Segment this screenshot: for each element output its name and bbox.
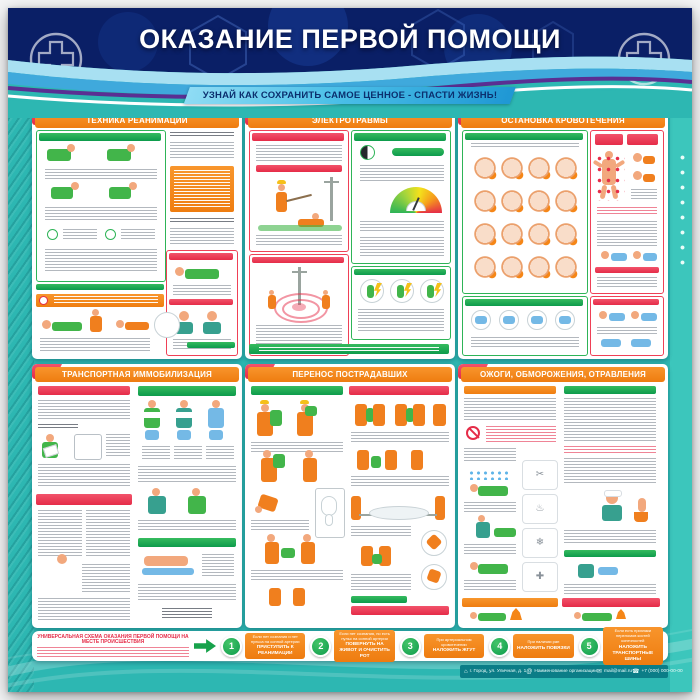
footer-organization-text: Наименование организации — [534, 669, 597, 674]
rope-coil — [321, 496, 337, 516]
figure — [268, 295, 276, 309]
check-icon — [47, 229, 58, 240]
sub-header-bar — [36, 284, 164, 290]
step-3-number: 3 — [400, 636, 421, 657]
bandaging-box — [590, 296, 664, 356]
text-lines — [86, 510, 130, 556]
frost-icon: ❄ — [522, 528, 558, 558]
rope-coil — [325, 514, 333, 526]
scheme-step-1: 1 Если нет сознания и нет пульса на сонн… — [221, 633, 305, 660]
head-bandage — [604, 490, 622, 497]
figure-head — [71, 182, 79, 190]
rescuer-figure — [293, 588, 305, 606]
text-lines — [40, 338, 150, 352]
panel-bleeding-control: ОСТАНОВКА КРОВОТЕЧЕНИЯ 3 — [458, 110, 668, 359]
red-text-lines — [486, 426, 556, 442]
bandage — [641, 313, 657, 321]
victim-head — [470, 484, 478, 492]
text-lines — [206, 446, 234, 460]
step-3-action: НАЛОЖИТЬ ЖГУТ — [427, 648, 481, 654]
bleeding-points — [595, 153, 625, 201]
sub-header-bar — [251, 386, 343, 395]
victim-figure — [273, 454, 285, 468]
text-lines — [162, 608, 212, 618]
text-lines — [45, 169, 157, 181]
text-lines — [256, 145, 342, 161]
bandage — [643, 253, 657, 261]
text-lines — [170, 142, 234, 160]
scheme-description-lines — [37, 647, 189, 658]
footer-address: ⌂ г. Город, ул. Уличная, д. 1 — [464, 669, 526, 675]
figure-head — [180, 400, 188, 408]
arm-sling — [176, 412, 192, 418]
ground — [258, 225, 342, 231]
panel-4-title: ТРАНСПОРТНАЯ ИММОБИЛИЗАЦИЯ — [35, 367, 239, 382]
figure-head — [129, 182, 137, 190]
voltage-center — [292, 303, 306, 311]
pressure-points-box — [462, 130, 588, 294]
safe-voltage-box — [351, 130, 451, 264]
pressure-hand — [643, 156, 655, 164]
figure-head — [212, 400, 220, 408]
step-5-action: НАЛОЖИТЬ ТРАНСПОРТНЫЕ ШИНЫ — [606, 645, 660, 663]
figure-head — [207, 311, 217, 321]
text-lines — [464, 448, 516, 462]
victim-body — [185, 269, 219, 279]
rescuer-arm — [125, 322, 149, 330]
text-lines — [597, 327, 657, 335]
sub-header-bar — [627, 134, 658, 145]
text-lines — [631, 189, 657, 201]
text-lines — [351, 432, 449, 442]
sub-header-bar — [595, 267, 659, 273]
text-lines — [471, 337, 579, 349]
bandage — [631, 339, 651, 347]
step-4-number: 4 — [489, 636, 510, 657]
bandage — [611, 253, 627, 261]
footer-email-text: mail@mail.ru — [604, 669, 632, 674]
figure — [367, 285, 374, 298]
step-2-box: Если нет сознания, но есть пульс на сонн… — [334, 630, 394, 663]
alert-bar — [36, 294, 164, 307]
step-5-box: Если есть признаки переломов костей коне… — [603, 627, 663, 664]
rescuer-figure — [413, 404, 425, 426]
panel-grid: ТЕХНИКА РЕАНИМАЦИИ 1 — [32, 110, 668, 628]
sub-header-bar — [465, 133, 583, 140]
panel-5-title: ПЕРЕНОС ПОСТРАДАВШИХ — [248, 367, 452, 382]
text-lines — [259, 347, 439, 352]
sub-header-bar — [465, 299, 583, 306]
footer-email: ✉ mail@mail.ru — [597, 669, 632, 675]
step-5-number: 5 — [579, 636, 600, 657]
step-4-box: При наличии ран НАЛОЖИТЬ ПОВЯЗКИ — [513, 634, 573, 658]
water-glass-icon: ✚ — [522, 562, 558, 592]
figure-body — [602, 505, 622, 521]
thermometer-icon: ♨ — [522, 494, 558, 524]
green-pill-label — [392, 148, 444, 156]
victim-head — [42, 320, 51, 329]
step-4-condition: При наличии ран — [516, 640, 570, 645]
red-text-lines — [597, 207, 657, 215]
text-lines — [360, 237, 444, 257]
splint-material — [74, 434, 102, 460]
text-lines — [464, 580, 516, 592]
sub-header-bar — [593, 299, 659, 305]
text-lines — [142, 446, 170, 460]
figure-head — [127, 144, 135, 152]
rescuer-figure — [276, 192, 287, 212]
victim-body — [494, 528, 516, 537]
text-lines — [138, 520, 236, 532]
bucket — [634, 512, 648, 522]
text-lines — [464, 502, 516, 514]
rescuer-head — [305, 450, 313, 458]
rescuer-head — [303, 534, 311, 542]
wooden-stick — [286, 194, 312, 202]
sub-header-bar — [138, 538, 236, 547]
step-1-action: ПРИСТУПИТЬ К РЕАНИМАЦИИ — [248, 645, 302, 657]
arrow-right-icon — [194, 639, 216, 654]
panel-footer-bar — [351, 606, 449, 615]
subtitle-text: УЗНАЙ КАК СОХРАНИТЬ САМОЕ ЦЕННОЕ - СПАСТ… — [203, 90, 497, 101]
text-lines — [351, 526, 411, 538]
text-lines — [174, 446, 202, 460]
step-3-condition: При артериальном кровотечении — [427, 638, 481, 648]
victim-figure — [372, 554, 382, 564]
rescuer-figure — [357, 450, 369, 470]
text-lines — [256, 235, 342, 247]
text-lines — [564, 530, 656, 544]
back-figure-straps — [52, 564, 74, 590]
back-figure-head — [57, 554, 67, 564]
hazard-icons-box — [351, 266, 451, 340]
sub-header-bar — [464, 386, 556, 394]
rescuer-head — [92, 309, 99, 316]
footer-phone-text: +7 (000) 000-00-00 — [642, 669, 683, 674]
text-lines — [121, 229, 155, 239]
text-lines — [173, 285, 231, 295]
text-lines — [464, 544, 516, 554]
text-lines — [351, 476, 449, 486]
sub-header-bar — [252, 257, 344, 263]
sub-header-bar — [39, 133, 161, 141]
figure-legs — [209, 430, 223, 440]
sub-header-bar — [36, 494, 132, 505]
rescuer-head — [267, 534, 275, 542]
victim-head — [574, 612, 581, 619]
panel-immobilization: ТРАНСПОРТНАЯ ИММОБИЛИЗАЦИЯ 4 — [32, 364, 242, 628]
sub-header-bar — [595, 134, 623, 145]
panel-carrying-victims: ПЕРЕНОС ПОСТРАДАВШИХ 5 — [245, 364, 455, 628]
victim-figure — [270, 410, 282, 426]
victim-head — [116, 320, 124, 328]
text-lines — [597, 221, 657, 247]
scheme-step-5: 5 Если есть признаки переломов костей ко… — [579, 627, 663, 664]
check-icon — [105, 229, 116, 240]
text-lines — [106, 434, 130, 458]
organization-icon: @ — [526, 669, 532, 675]
text-lines — [82, 564, 130, 592]
alert-icon — [39, 296, 48, 305]
panel-resuscitation: ТЕХНИКА РЕАНИМАЦИИ 1 — [32, 110, 242, 359]
rescuer-figure — [385, 450, 397, 470]
bandage — [609, 313, 625, 321]
victim-body — [478, 486, 508, 496]
figure-head — [323, 290, 328, 295]
injured-leg — [638, 498, 646, 512]
sub-header-bar — [138, 386, 236, 396]
scheme-step-3: 3 При артериальном кровотечении НАЛОЖИТЬ… — [400, 634, 484, 658]
victim-figure — [305, 406, 317, 416]
text-lines — [464, 398, 556, 420]
figure-head — [152, 488, 160, 496]
figure-head — [46, 434, 54, 442]
sub-header-bar — [462, 598, 558, 607]
step-5-condition: Если есть признаки переломов костей коне… — [606, 629, 660, 643]
detail-circle — [154, 312, 180, 338]
figure-body — [203, 322, 221, 334]
step-3-box: При артериальном кровотечении НАЛОЖИТЬ Ж… — [424, 634, 484, 658]
red-text-lines — [564, 446, 656, 454]
step-voltage-box — [249, 254, 349, 356]
victim-body — [478, 564, 508, 574]
figure-body — [208, 408, 224, 428]
subtitle-banner: УЗНАЙ КАК СОХРАНИТЬ САМОЕ ЦЕННОЕ - СПАСТ… — [187, 87, 513, 104]
sub-header-bar — [252, 133, 344, 141]
pressure-hand — [643, 174, 655, 182]
rescuer-head — [263, 450, 271, 458]
rescuer-figure — [301, 542, 315, 564]
scheme-step-2: 2 Если нет сознания, но есть пульс на со… — [310, 630, 394, 663]
figure-head — [192, 488, 200, 496]
text-lines — [54, 296, 158, 305]
victim-body — [478, 613, 506, 621]
rescuer-figure — [476, 522, 490, 538]
text-lines — [360, 165, 444, 181]
figure-legs — [177, 430, 191, 440]
panel-6-header: ОЖОГИ, ОБМОРОЖЕНИЯ, ОТРАВЛЕНИЯ — [461, 367, 665, 382]
figure-body — [188, 496, 206, 514]
bandaged-arm — [559, 316, 571, 324]
text-lines — [564, 458, 656, 484]
sub-header-bar — [256, 165, 342, 172]
sub-header-bar — [354, 133, 446, 141]
sub-header-bar — [169, 299, 233, 305]
flame-icon — [616, 609, 626, 619]
warning-text-box — [170, 166, 234, 212]
water-drops — [468, 470, 508, 480]
text-lines — [45, 249, 157, 273]
universal-scheme-bar: УНИВЕРСАЛЬНАЯ СХЕМА ОКАЗАНИЯ ПЕРВОЙ ПОМО… — [32, 631, 668, 661]
column-heading — [38, 424, 78, 430]
figure-body — [144, 408, 160, 428]
step-2-action: ПОВЕРНУТЬ НА ЖИВОТ И ОЧИСТИТЬ РОТ — [337, 642, 391, 660]
sub-header-bar — [349, 386, 449, 395]
panel-4-header: ТРАНСПОРТНАЯ ИММОБИЛИЗАЦИЯ — [35, 367, 239, 382]
vignette-head — [631, 311, 639, 319]
panel-6-title: ОЖОГИ, ОБМОРОЖЕНИЯ, ОТРАВЛЕНИЯ — [461, 367, 665, 382]
sub-header-bar — [562, 598, 660, 607]
stretcher-canvas — [369, 506, 429, 520]
flame-icon — [510, 608, 522, 620]
text-lines — [471, 143, 579, 149]
step-2-condition: Если нет сознания, но есть пульс на сонн… — [337, 632, 391, 642]
rescuer-figure — [269, 588, 281, 606]
sub-header-bar — [169, 253, 233, 260]
stretcher-bearer — [435, 496, 445, 520]
power-pole — [330, 177, 333, 221]
scissors-icon: ✂ — [522, 460, 558, 490]
victim-figure — [281, 548, 295, 558]
figure — [322, 295, 330, 309]
sub-header-bar — [354, 269, 446, 275]
vignette-head — [633, 251, 641, 259]
rescuer-figure — [90, 316, 102, 332]
high-voltage-box — [249, 130, 349, 252]
first-aid-poster: ОКАЗАНИЕ ПЕРВОЙ ПОМОЩИ УЗНАЙ КАК СОХРАНИ… — [8, 8, 692, 692]
rescuer-head — [478, 515, 485, 522]
text-lines — [63, 229, 97, 239]
victim-body — [582, 613, 612, 621]
sub-header-bar — [187, 342, 235, 348]
vignette-head — [599, 311, 607, 319]
footer-phone: ☎ +7 (000) 000-00-00 — [632, 669, 683, 675]
footer-organization: @ Наименование организации — [526, 669, 597, 675]
victim-head — [470, 562, 478, 570]
figure-pillow — [51, 187, 73, 199]
text-lines — [358, 309, 444, 331]
subtitle-banner-ribbon: УЗНАЙ КАК СОХРАНИТЬ САМОЕ ЦЕННОЕ - СПАСТ… — [184, 87, 517, 104]
power-line — [292, 271, 307, 273]
victim-head — [175, 267, 184, 276]
panel-footer-bar — [249, 344, 449, 354]
figure-head — [269, 290, 274, 295]
bandaged-arm — [503, 316, 515, 324]
rescuer-figure — [578, 564, 594, 578]
vignette-head — [601, 251, 609, 259]
figure-head — [67, 144, 75, 152]
victim-head — [470, 612, 477, 619]
figure-head — [148, 400, 156, 408]
address-icon: ⌂ — [464, 669, 468, 675]
text-lines — [38, 598, 130, 620]
victim-body — [598, 567, 618, 575]
bandaged-arm — [475, 316, 487, 324]
victim-figure — [371, 456, 381, 468]
step-1-box: Если нет сознания и нет пульса на сонной… — [245, 633, 305, 660]
text-lines — [38, 510, 82, 556]
rescuer-figure — [265, 542, 279, 564]
rescuer-figure — [373, 404, 385, 426]
text-lines — [351, 574, 411, 590]
text-lines — [174, 170, 230, 208]
text-lines — [138, 466, 236, 482]
text-lines — [45, 207, 157, 221]
step-1-number: 1 — [221, 636, 242, 657]
panel-burns-frostbite-poisoning: ОЖОГИ, ОБМОРОЖЕНИЯ, ОТРАВЛЕНИЯ 6 ✂ ♨ ❄ ✚ — [458, 364, 668, 628]
text-lines — [251, 570, 343, 582]
text-lines — [251, 520, 309, 530]
email-icon: ✉ — [597, 669, 602, 675]
power-line — [324, 181, 339, 183]
sub-header-bar — [38, 386, 130, 395]
poster-title: ОКАЗАНИЕ ПЕРВОЙ ПОМОЩИ — [8, 24, 692, 55]
polarity-icon — [360, 145, 375, 160]
footer-address-text: г. Город, ул. Уличная, д. 1 — [470, 669, 527, 674]
text-lines — [597, 277, 657, 289]
leg-splint — [142, 568, 194, 575]
step-4-action: НАЛОЖИТЬ ПОВЯЗКИ — [516, 646, 570, 652]
scheme-title-block: УНИВЕРСАЛЬНАЯ СХЕМА ОКАЗАНИЯ ПЕРВОЙ ПОМО… — [37, 635, 189, 658]
sub-header-bar — [564, 550, 656, 557]
rescuer-figure — [411, 450, 423, 470]
figure-body — [176, 408, 192, 428]
check-consciousness-box — [36, 130, 166, 282]
dot-pattern — [680, 150, 685, 272]
arm-sling — [144, 412, 160, 418]
sub-header-bar — [351, 596, 407, 603]
precordial-strike-box — [166, 250, 238, 356]
column-heading — [170, 218, 234, 224]
gauge-legend — [360, 221, 444, 231]
column-heading — [170, 132, 234, 138]
step-2-number: 2 — [310, 636, 331, 657]
text-lines — [202, 554, 234, 576]
rescuer-figure — [433, 404, 446, 426]
figure — [427, 285, 434, 298]
panel-electric-injury: ЭЛЕКТРОТРАВМЫ 2 — [245, 110, 455, 359]
panel-5-header: ПЕРЕНОС ПОСТРАДАВШИХ — [248, 367, 452, 382]
victim-body — [52, 322, 82, 331]
figure-head — [179, 311, 189, 321]
bandaged-arm — [531, 316, 543, 324]
footer-contact-bar: ⌂ г. Город, ул. Уличная, д. 1 @ Наименов… — [460, 665, 668, 678]
stretcher-bearer — [351, 496, 361, 520]
figure — [397, 285, 404, 298]
vignette-head — [633, 153, 642, 162]
rescuer-head — [278, 184, 285, 191]
figure-body — [148, 496, 166, 514]
rescuer-head — [255, 506, 262, 513]
text-lines — [564, 398, 656, 442]
step-1-condition: Если нет сознания и нет пульса на сонной… — [248, 635, 302, 645]
scheme-title: УНИВЕРСАЛЬНАЯ СХЕМА ОКАЗАНИЯ ПЕРВОЙ ПОМО… — [37, 635, 189, 646]
injured-leg — [144, 556, 188, 566]
text-lines — [564, 584, 656, 594]
vignette-head — [633, 171, 642, 180]
text-lines — [38, 464, 130, 488]
rescuer-head — [261, 404, 269, 412]
text-lines — [38, 400, 130, 420]
pressure-point-vignettes — [471, 153, 579, 285]
bandage — [601, 339, 621, 347]
phone-icon: ☎ — [632, 669, 639, 675]
figure-legs — [145, 430, 159, 440]
text-lines — [138, 584, 236, 600]
arterial-points-box — [590, 130, 664, 294]
text-lines — [170, 228, 234, 244]
scheme-step-4: 4 При наличии ран НАЛОЖИТЬ ПОВЯЗКИ — [489, 634, 573, 658]
tourniquet-steps-box — [462, 296, 588, 356]
figure-pillow — [109, 187, 131, 199]
sub-header-bar — [564, 386, 656, 394]
rescuer-figure — [303, 458, 317, 482]
